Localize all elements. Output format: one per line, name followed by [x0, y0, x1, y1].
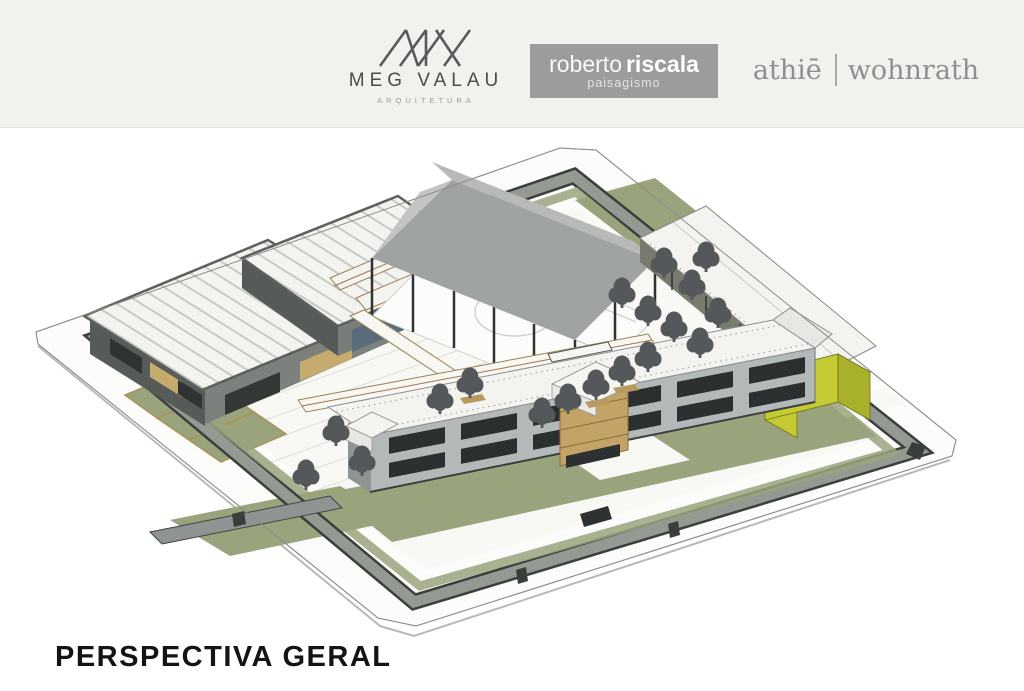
meg-valau-logo: MEG VALAU ARQUITETURA: [338, 24, 514, 105]
roberto-riscala-subtitle: paisagismo: [530, 76, 718, 90]
athie-wohnrath-logo: athiē wohnrath: [746, 50, 986, 90]
meg-valau-subtitle: ARQUITETURA: [338, 96, 514, 105]
roberto-riscala-name: robertoriscala: [530, 53, 718, 76]
athie-text: athiē: [753, 55, 822, 86]
page: MEG VALAU ARQUITETURA robertoriscala pai…: [0, 0, 1024, 691]
athie-wohnrath-divider: [835, 54, 837, 86]
header-band: MEG VALAU ARQUITETURA robertoriscala pai…: [0, 0, 1024, 128]
roberto-riscala-logo: robertoriscala paisagismo: [530, 44, 718, 98]
wohnrath-text: wohnrath: [848, 55, 979, 86]
meg-valau-name: MEG VALAU: [338, 70, 514, 92]
site-rendering-svg: [0, 140, 1024, 640]
site-perspective-rendering: [0, 140, 1024, 640]
meg-valau-mark-icon: [374, 24, 478, 68]
perspective-title: PERSPECTIVA GERAL: [55, 641, 392, 674]
